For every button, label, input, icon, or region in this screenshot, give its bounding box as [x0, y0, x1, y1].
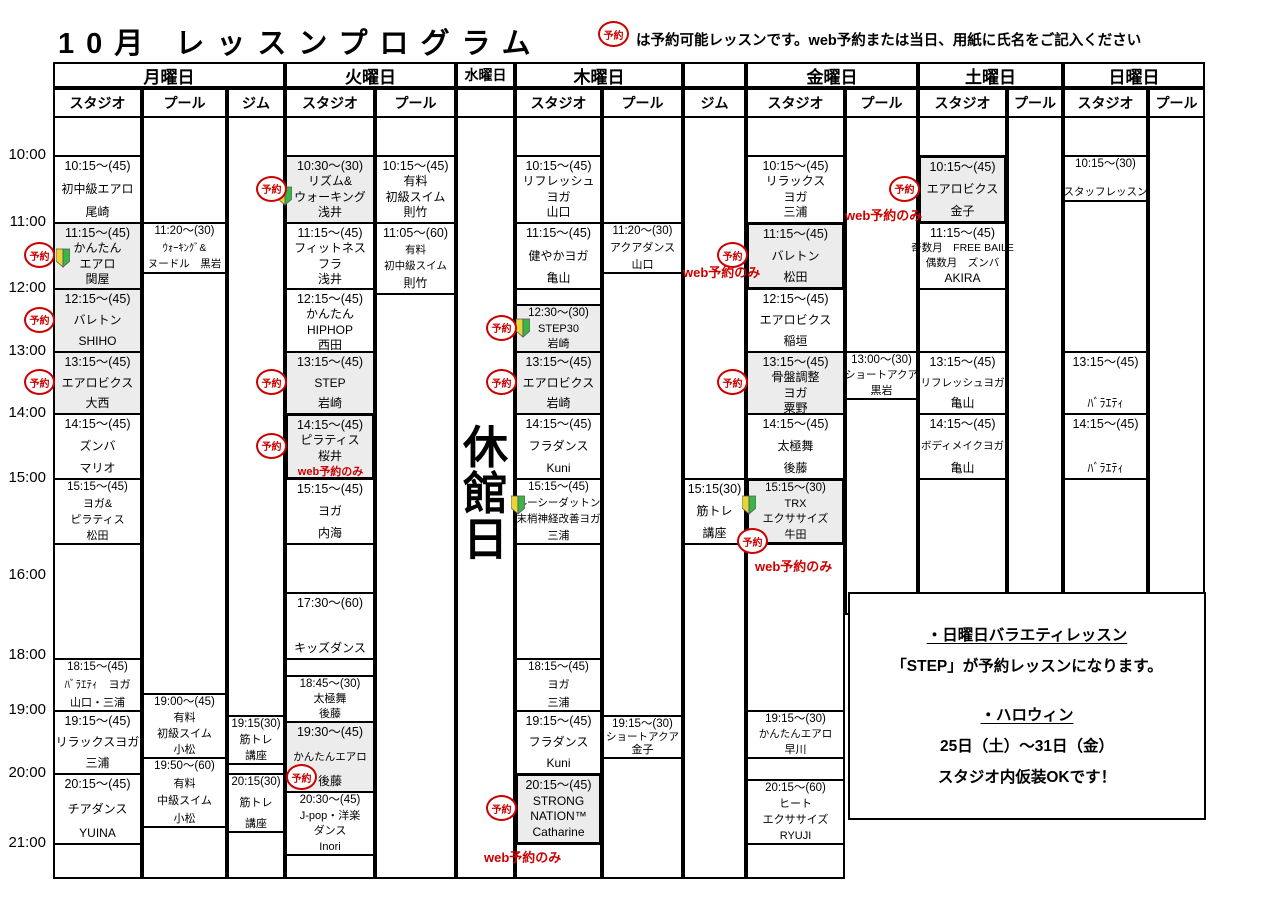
lesson-teacher: 岩崎 — [318, 396, 342, 412]
lesson-title: ボディメイクヨガ — [921, 440, 1004, 454]
lesson-title: ヨガ& — [83, 498, 112, 510]
lesson-title: ショートアクア — [845, 370, 918, 382]
lesson-cell: 12:15～(45)バレトンSHIHO — [53, 288, 142, 353]
lesson-time: 20:15(30) — [231, 776, 280, 789]
lesson-cell: 14:15～(45)ボディメイクヨガ亀山 — [918, 413, 1007, 480]
lesson-teacher: 三浦 — [783, 205, 807, 221]
lesson-title: エアロビクス — [62, 376, 134, 392]
time-label: 14:00 — [0, 404, 46, 421]
lesson-teacher: 大西 — [85, 396, 109, 412]
lesson-teacher: 内海 — [318, 526, 342, 542]
lesson-title: 骨盤調整 — [771, 370, 819, 386]
notice-line: 25日（土）～31日（金） — [940, 731, 1114, 762]
lesson-title: 初級スイム — [157, 728, 212, 740]
lesson-title: ﾊﾞﾗｴﾃｨ ヨガ — [65, 679, 131, 691]
lesson-title: ダンス — [314, 825, 347, 837]
lesson-title: STRONG — [533, 794, 584, 810]
lesson-time: 10:15～(45) — [762, 158, 828, 174]
notice-line: ・日曜日バラエティレッスン — [927, 620, 1128, 651]
lesson-teacher: 小松 — [174, 744, 196, 756]
beginner-icon — [516, 318, 530, 338]
lesson-teacher: 浅井 — [318, 272, 342, 288]
facility-header: プール — [1148, 88, 1205, 118]
lesson-cell: 15:15～(45)ヨガ内海 — [285, 478, 375, 545]
lesson-cell: 10:15～(45)初中級エアロ尾崎 — [53, 155, 142, 224]
lesson-cell: 11:15～(45)バレトン松田 — [746, 222, 845, 290]
lesson-teacher: 亀山 — [950, 396, 974, 412]
lesson-cell: 12:15～(45)かんたんHIPHOP西田 — [285, 288, 375, 353]
lesson-cell: 18:45～(30)太極舞後藤 — [285, 675, 375, 723]
reserve-badge-icon: 予約 — [256, 433, 287, 459]
lesson-time: 20:15～(45) — [525, 777, 591, 793]
lesson-time: 15:15～(45) — [528, 481, 589, 494]
reserve-badge-icon: 予約 — [486, 315, 517, 341]
lesson-time: 13:00～(30) — [851, 354, 912, 367]
lesson-program-sheet: 10月 レッスンプログラム 予約 は予約可能レッスンです。web予約または当日、… — [0, 0, 1280, 904]
lesson-title: STEP30 — [538, 323, 579, 335]
lesson-title: ズンバ — [79, 439, 115, 455]
reserve-badge-icon: 予約 — [889, 176, 920, 202]
lesson-teacher: Catharine — [532, 825, 584, 841]
lesson-title: 有料 — [403, 174, 427, 190]
lesson-time: 13:15～(45) — [929, 354, 995, 370]
time-label: 19:00 — [0, 701, 46, 718]
facility-header — [456, 88, 515, 118]
lesson-title: ｳｫｰｷﾝｸﾞ& — [163, 243, 207, 255]
time-label: 16:00 — [0, 566, 46, 583]
lesson-cell: 13:15～(45)STEP岩崎 — [285, 351, 375, 415]
lesson-time: 10:30～(30) — [297, 158, 363, 174]
lesson-teacher: 関屋 — [85, 272, 109, 288]
lesson-time: 15:15(30) — [688, 481, 742, 497]
lesson-title: ピラティス — [300, 433, 359, 449]
facility-header: プール — [1007, 88, 1063, 118]
lesson-title: ヨガ — [783, 386, 807, 402]
lesson-cell: 20:15～(45)チアダンスYUINA — [53, 773, 142, 845]
day-header: 水曜日 — [456, 62, 515, 88]
lesson-teacher: 浅井 — [318, 205, 342, 221]
lesson-time: 10:15～(45) — [64, 158, 130, 174]
facility-header: ジム — [227, 88, 285, 118]
time-label: 21:00 — [0, 834, 46, 851]
lesson-teacher: 三浦 — [85, 756, 109, 772]
lesson-time: 13:15～(45) — [64, 354, 130, 370]
web-only-note: web予約のみ — [484, 847, 561, 866]
lesson-time: 11:05～(60) — [383, 225, 448, 241]
lesson-title: ヨガ — [546, 190, 570, 206]
lesson-title: ヨガ — [548, 679, 570, 691]
lesson-title: エアロ — [79, 257, 115, 273]
lesson-time: 11:15～(45) — [297, 225, 362, 241]
lesson-time: 11:15～(45) — [526, 225, 591, 241]
lesson-teacher: Kuni — [546, 461, 570, 477]
lesson-cell: 11:15～(45)フィットネスフラ浅井 — [285, 222, 375, 290]
lesson-title: ヨガ — [783, 190, 807, 206]
facility-header: スタジオ — [515, 88, 602, 118]
facility-column — [1007, 116, 1063, 594]
lesson-teacher: 山口 — [546, 205, 570, 221]
lesson-teacher: 則竹 — [403, 205, 427, 221]
lesson-cell: 10:30～(30)リズム&ウォーキング浅井 — [285, 155, 375, 224]
notice-box: ・日曜日バラエティレッスン「STEP」が予約レッスンになります。・ハロウィン25… — [848, 592, 1206, 820]
lesson-cell: 14:15～(45)太極舞後藤 — [746, 413, 845, 480]
lesson-time: 12:15～(45) — [297, 291, 363, 307]
lesson-title: HIPHOP — [307, 323, 353, 339]
lesson-teacher: 岩崎 — [548, 338, 570, 350]
lesson-time: 14:15～(45) — [762, 416, 828, 432]
day-header: 金曜日 — [746, 62, 918, 88]
lesson-time: 12:15～(45) — [762, 291, 828, 307]
lesson-time: 15:15～(45) — [67, 481, 128, 494]
lesson-title: かんたん — [306, 307, 354, 323]
lesson-time: 12:15～(45) — [64, 291, 130, 307]
lesson-teacher: 稲垣 — [783, 334, 807, 350]
lesson-title: ウォーキング — [294, 190, 366, 206]
notice-line: スタジオ内仮装OKです！ — [938, 762, 1116, 793]
lesson-cell: 19:15～(30)かんたんエアロ早川 — [746, 710, 845, 759]
web-only-note: web予約のみ — [845, 205, 922, 224]
facility-header: スタジオ — [285, 88, 375, 118]
lesson-cell: 14:15～(45)ピラティス桜井web予約のみ — [285, 413, 375, 480]
reserve-badge-icon: 予約 — [256, 369, 287, 395]
lesson-teacher: Kuni — [546, 756, 570, 772]
lesson-time: 14:15～(45) — [1072, 416, 1138, 432]
lesson-cell: 13:15～(45)エアロビクス岩崎 — [515, 351, 602, 415]
facility-header: プール — [845, 88, 918, 118]
lesson-time: 15:15～(45) — [297, 481, 363, 497]
lesson-cell: 10:15～(45)リフレッシュヨガ山口 — [515, 155, 602, 224]
lesson-title: バレトン — [73, 313, 121, 329]
lesson-time: 18:15～(45) — [67, 661, 128, 674]
lesson-cell: 11:15～(45)健やかヨガ亀山 — [515, 222, 602, 290]
lesson-cell: 14:15～(45)ズンバマリオ — [53, 413, 142, 480]
lesson-cell: 19:15(30)筋トレ講座 — [227, 715, 285, 765]
lesson-time: 10:15～(45) — [525, 158, 591, 174]
time-label: 13:00 — [0, 342, 46, 359]
lesson-time: 19:30～(45) — [297, 724, 363, 740]
lesson-teacher: 桜井web予約のみ — [289, 449, 371, 480]
day-header: 木曜日 — [515, 62, 683, 88]
lesson-title: 講座 — [245, 750, 267, 762]
lesson-cell: 11:20～(30)ｳｫｰｷﾝｸﾞ&ヌードル 黒岩 — [142, 222, 227, 274]
lesson-time: 19:15～(30) — [765, 713, 826, 726]
lesson-cell: 20:30～(45)J-pop・洋楽ダンスInori — [285, 791, 375, 856]
reserve-badge-icon: 予約 — [598, 21, 629, 47]
lesson-cell: 19:15～(45)リラックスヨガ三浦 — [53, 710, 142, 775]
time-label: 15:00 — [0, 469, 46, 486]
lesson-teacher: 早川 — [785, 744, 807, 756]
lesson-title: J-pop・洋楽 — [300, 810, 361, 822]
lesson-title: かんたん — [73, 241, 121, 257]
lesson-title: 初中級スイム — [384, 260, 447, 274]
lesson-title: 太極舞 — [777, 439, 813, 455]
lesson-title: フィットネス — [294, 241, 366, 257]
lesson-title: ルーシーダットン — [517, 498, 601, 510]
lesson-time: 14:15～(45) — [64, 416, 130, 432]
lesson-title: バレトン — [771, 249, 819, 265]
lesson-time: 19:15～(45) — [525, 713, 591, 729]
time-label: 18:00 — [0, 646, 46, 663]
lesson-time: 13:15～(45) — [525, 354, 591, 370]
lesson-title: ヌードル 黒岩 — [148, 259, 222, 271]
reserve-badge-icon: 予約 — [717, 369, 748, 395]
lesson-time: 19:15～(30) — [612, 718, 673, 731]
lesson-title: キッズダンス — [294, 641, 366, 657]
lesson-time: 19:15(30) — [231, 718, 280, 731]
lesson-teacher: 亀山 — [546, 271, 570, 287]
lesson-cell: 18:15～(45)ﾊﾞﾗｴﾃｨ ヨガ山口・三浦 — [53, 658, 142, 712]
lesson-title: アクアダンス — [610, 242, 675, 254]
lesson-title: エアロビクス — [760, 313, 832, 329]
reserve-badge-icon: 予約 — [486, 369, 517, 395]
time-label: 20:00 — [0, 764, 46, 781]
lesson-time: 20:15～(60) — [765, 782, 826, 795]
lesson-teacher: Inori — [319, 841, 340, 853]
facility-header: プール — [142, 88, 227, 118]
lesson-time: 13:15～(45) — [762, 354, 828, 370]
day-header: 土曜日 — [918, 62, 1063, 88]
lesson-title: リラックス — [766, 174, 826, 190]
lesson-title: フラ — [318, 257, 342, 273]
lesson-time: 14:15～(45) — [929, 416, 995, 432]
reserve-badge-icon: 予約 — [286, 764, 317, 790]
lesson-teacher: 金子 — [632, 744, 654, 756]
lesson-title: 太極舞 — [314, 693, 347, 705]
lesson-title: リフレッシュヨガ — [921, 377, 1005, 391]
lesson-teacher: 山口・三浦 — [70, 697, 125, 709]
legend-text: は予約可能レッスンです。web予約または当日、用紙に氏名をご記入ください — [636, 29, 1141, 50]
lesson-teacher: 岩崎 — [546, 396, 570, 412]
lesson-title: ヨガ — [318, 504, 342, 520]
lesson-cell: 11:20～(30)アクアダンス山口 — [602, 222, 683, 274]
beginner-icon — [742, 495, 756, 515]
lesson-cell: 20:15～(45)STRONGNATION™Catharine — [515, 773, 602, 845]
lesson-teacher: 後藤 — [318, 774, 342, 790]
reserve-badge-icon: 予約 — [24, 369, 55, 395]
lesson-title: 講座 — [702, 526, 726, 542]
lesson-title: 講座 — [245, 818, 267, 830]
day-header: 日曜日 — [1063, 62, 1205, 88]
notice-line: 「STEP」が予約レッスンになります。 — [891, 651, 1162, 682]
lesson-cell: 13:00～(30)ショートアクア黒岩 — [845, 351, 918, 400]
lesson-teacher: YUINA — [79, 826, 116, 842]
notice-line: ・ハロウィン — [980, 700, 1073, 731]
facility-header: ジム — [683, 88, 746, 118]
lesson-title: 初級スイム — [386, 190, 446, 206]
lesson-title: エクササイズ — [763, 814, 829, 826]
reserve-badge-icon: 予約 — [717, 242, 748, 268]
lesson-teacher: 黒岩 — [871, 385, 893, 397]
lesson-time: 10:15～(45) — [929, 159, 995, 175]
lesson-title: ショートアクア — [606, 732, 679, 744]
lesson-title: エアロビクス — [927, 182, 999, 198]
lesson-title: エアロビクス — [523, 376, 595, 392]
lesson-teacher: 尾崎 — [85, 205, 109, 221]
lesson-cell: 13:15～(45)骨盤調整ヨガ粟野 — [746, 351, 845, 415]
lesson-cell: 10:15～(45)エアロビクス金子 — [918, 155, 1007, 224]
day-header: 火曜日 — [285, 62, 456, 88]
lesson-teacher: 三浦 — [548, 530, 570, 542]
lesson-title: ピラティス — [70, 514, 124, 526]
lesson-title: 初中級エアロ — [61, 182, 133, 198]
lesson-cell: 17:30～(60)キッズダンス — [285, 592, 375, 660]
lesson-teacher: マリオ — [79, 461, 115, 477]
lesson-cell: 13:15～(45)エアロビクス大西 — [53, 351, 142, 415]
lesson-cell: 10:15～(45)リラックスヨガ三浦 — [746, 155, 845, 224]
day-header — [683, 62, 746, 88]
lesson-title: フラダンス — [529, 439, 589, 455]
lesson-title: ヒート — [779, 798, 812, 810]
lesson-title: 有料 — [405, 244, 426, 258]
lesson-time: 13:15～(45) — [297, 354, 363, 370]
lesson-teacher: AKIRA — [944, 271, 980, 287]
lesson-time: 11:15～(45) — [65, 225, 130, 241]
lesson-cell: 10:15～(30)スタッフレッスン — [1063, 155, 1148, 202]
lesson-cell: 19:00～(45)有料初級スイム小松 — [142, 693, 227, 759]
lesson-title: スタッフレッスン — [1064, 187, 1148, 199]
lesson-title: 筋トレ — [240, 734, 273, 746]
time-label: 12:00 — [0, 279, 46, 296]
lesson-teacher: 松田 — [87, 530, 109, 542]
lesson-teacher: RYUJI — [780, 830, 812, 842]
lesson-time: 15:15～(30) — [765, 482, 826, 495]
lesson-time: 11:20～(30) — [613, 225, 673, 238]
lesson-time: 11:20～(30) — [155, 225, 215, 238]
lesson-cell: 18:15～(45)ヨガ三浦 — [515, 658, 602, 712]
lesson-title: 有料 — [174, 778, 196, 790]
lesson-title: 有料 — [174, 712, 196, 724]
page-title: 10月 レッスンプログラム — [58, 20, 543, 62]
beginner-icon — [511, 495, 525, 515]
reserve-badge-icon: 予約 — [737, 528, 768, 554]
lesson-title: かんたんエアロ — [759, 729, 833, 741]
lesson-cell: 14:15～(45)ﾊﾞﾗｴﾃｨ — [1063, 413, 1148, 480]
day-header: 月曜日 — [53, 62, 285, 88]
lesson-time: 17:30～(60) — [297, 595, 363, 611]
lesson-teacher: 後藤 — [319, 708, 341, 720]
lesson-teacher: 後藤 — [783, 461, 807, 477]
lesson-title: リズム& — [308, 174, 352, 190]
lesson-cell: 19:50～(60)有料中級スイム小松 — [142, 757, 227, 828]
beginner-icon — [56, 248, 70, 268]
reserve-badge-icon: 予約 — [256, 176, 287, 202]
lesson-teacher: 牛田 — [785, 529, 807, 541]
reserve-badge-icon: 予約 — [24, 242, 55, 268]
lesson-teacher: SHIHO — [78, 334, 116, 350]
lesson-cell: 15:15(30)筋トレ講座 — [683, 478, 746, 545]
reserve-badge-icon: 予約 — [486, 795, 517, 821]
lesson-time: 11:15～(45) — [763, 226, 828, 242]
facility-header: スタジオ — [1063, 88, 1148, 118]
lesson-title: エクササイズ — [763, 513, 829, 525]
lesson-cell: 10:15～(45)有料初級スイム則竹 — [375, 155, 456, 224]
lesson-time: 19:15～(45) — [64, 713, 130, 729]
lesson-title: 筋トレ — [696, 504, 732, 520]
lesson-title: STEP — [314, 376, 345, 392]
facility-header: プール — [602, 88, 683, 118]
lesson-time: 18:15～(45) — [528, 661, 589, 674]
lesson-cell: 20:15(30)筋トレ講座 — [227, 773, 285, 833]
lesson-cell: 20:15～(60)ヒートエクササイズRYUJI — [746, 779, 845, 845]
lesson-title: かんたんエアロ — [293, 751, 367, 765]
lesson-time: 12:30～(30) — [528, 307, 589, 320]
lesson-title: 偶数月 ズンバ — [926, 257, 1000, 271]
lesson-cell: 13:15～(45)ﾊﾞﾗｴﾃｨ — [1063, 351, 1148, 415]
lesson-cell: 15:15～(45)ヨガ&ピラティス松田 — [53, 478, 142, 545]
facility-column — [1148, 116, 1205, 594]
lesson-cell: 12:15～(45)エアロビクス稲垣 — [746, 288, 845, 353]
lesson-title: 奇数月 FREE BAILE — [911, 242, 1014, 256]
facility-header: プール — [375, 88, 456, 118]
time-label: 11:00 — [0, 213, 46, 230]
lesson-teacher: 則竹 — [403, 276, 427, 292]
lesson-teacher: 金子 — [950, 204, 974, 220]
lesson-teacher: 松田 — [783, 270, 807, 286]
lesson-time: 14:15～(45) — [525, 416, 591, 432]
lesson-title: 末梢神経改善ヨガ — [517, 514, 601, 526]
lesson-cell: 11:05～(60)有料初中級スイム則竹 — [375, 222, 456, 295]
lesson-time: 19:50～(60) — [154, 760, 215, 773]
lesson-time: 20:30～(45) — [300, 794, 361, 807]
lesson-time: 13:15～(45) — [1072, 354, 1138, 370]
closed-day-label: 休館日 — [456, 425, 515, 563]
lesson-teacher: 山口 — [632, 259, 654, 271]
lesson-title: ﾊﾞﾗｴﾃｨ — [1087, 396, 1123, 412]
lesson-title: 健やかヨガ — [528, 249, 588, 265]
lesson-title: リフレッシュ — [522, 174, 594, 190]
lesson-title: チアダンス — [68, 802, 128, 818]
lesson-cell: 19:15～(30)ショートアクア金子 — [602, 715, 683, 759]
lesson-time: 20:15～(45) — [64, 776, 130, 792]
web-only-note: web予約のみ — [298, 466, 363, 478]
lesson-cell: 14:15～(45)フラダンスKuni — [515, 413, 602, 480]
lesson-time: 10:15～(30) — [1075, 158, 1136, 171]
web-only-note: web予約のみ — [755, 556, 832, 575]
lesson-title: TRX — [785, 498, 807, 510]
lesson-teacher: 亀山 — [950, 461, 974, 477]
lesson-title: ﾊﾞﾗｴﾃｨ — [1087, 461, 1123, 477]
lesson-cell: 19:15～(45)フラダンスKuni — [515, 710, 602, 775]
lesson-time: 14:15～(45) — [297, 417, 363, 433]
time-label: 10:00 — [0, 146, 46, 163]
lesson-teacher: 小松 — [174, 813, 196, 825]
lesson-title: 中級スイム — [157, 795, 212, 807]
facility-header: スタジオ — [918, 88, 1007, 118]
lesson-time: 18:45～(30) — [300, 678, 361, 691]
lesson-cell: 11:15～(45)奇数月 FREE BAILE偶数月 ズンバAKIRA — [918, 222, 1007, 290]
lesson-title: フラダンス — [529, 735, 589, 751]
lesson-time: 10:15～(45) — [382, 158, 448, 174]
lesson-teacher: 三浦 — [548, 697, 570, 709]
lesson-time: 11:15～(45) — [930, 225, 995, 241]
reserve-badge-icon: 予約 — [24, 307, 55, 333]
lesson-title: リラックスヨガ — [56, 735, 140, 751]
facility-header: スタジオ — [53, 88, 142, 118]
lesson-time: 19:00～(45) — [154, 696, 215, 709]
lesson-cell: 13:15～(45)リフレッシュヨガ亀山 — [918, 351, 1007, 415]
facility-header: スタジオ — [746, 88, 845, 118]
lesson-title: 筋トレ — [240, 797, 273, 809]
lesson-cell: 15:15～(45)ルーシーダットン末梢神経改善ヨガ三浦 — [515, 478, 602, 545]
lesson-title: NATION™ — [530, 809, 586, 825]
